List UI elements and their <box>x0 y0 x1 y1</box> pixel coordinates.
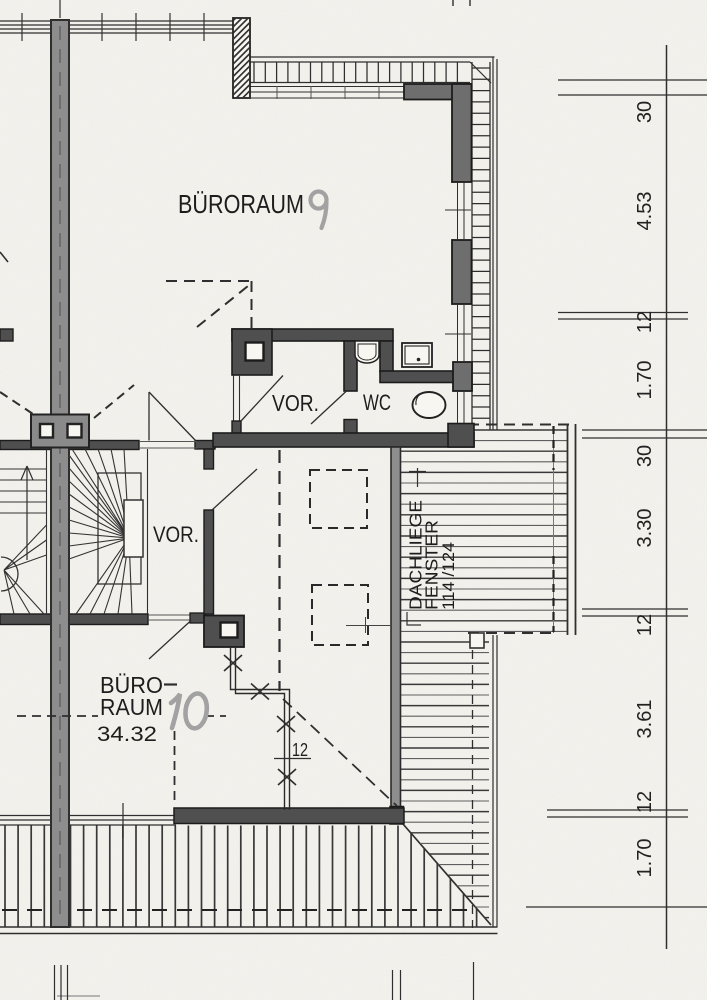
svg-text:VOR.: VOR. <box>153 522 199 547</box>
svg-text:1.70: 1.70 <box>634 839 656 878</box>
svg-text:1.70: 1.70 <box>634 361 656 400</box>
svg-text:30: 30 <box>634 101 656 123</box>
svg-text:3.30: 3.30 <box>634 509 656 548</box>
svg-text:12: 12 <box>292 740 308 760</box>
svg-text:VOR.: VOR. <box>272 390 319 416</box>
svg-text:3.61: 3.61 <box>634 700 656 739</box>
svg-text:RAUM: RAUM <box>100 694 163 720</box>
svg-text:114 /124: 114 /124 <box>439 542 458 610</box>
svg-text:34.32: 34.32 <box>97 722 157 746</box>
svg-text:12: 12 <box>634 311 656 333</box>
svg-text:4.53: 4.53 <box>634 192 656 231</box>
svg-text:12: 12 <box>634 614 656 636</box>
svg-text:12: 12 <box>634 791 656 813</box>
svg-text:BÜRORAUM: BÜRORAUM <box>178 189 304 219</box>
svg-text:WC: WC <box>363 390 391 415</box>
svg-text:30: 30 <box>634 445 656 467</box>
